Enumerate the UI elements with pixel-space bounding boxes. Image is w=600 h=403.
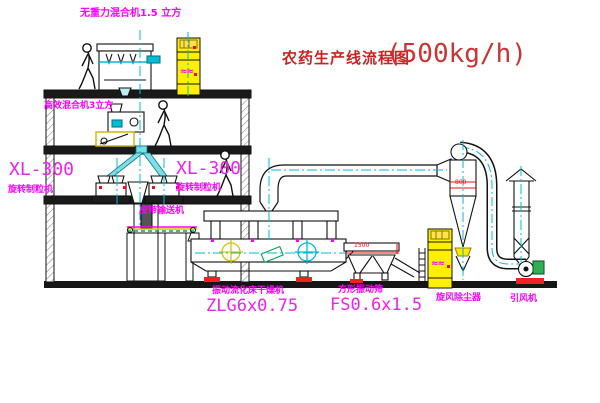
pesticide-line-flow-diagram: 无重力混合机1.5 立方 高效混合机3立方 XL-300 旋转制粒机 XL-30… xyxy=(0,0,600,403)
capacity-label: (500kg/h) xyxy=(386,41,527,67)
label-granulator-left: 旋转制粒机 xyxy=(8,186,53,195)
label-cyclone: 旋风除尘器 xyxy=(436,294,481,303)
label-dryer-name: 振动流化床干燥机 xyxy=(212,287,284,296)
dimension-cyclone: 800 xyxy=(455,180,466,186)
vibrating-sieve xyxy=(344,243,420,283)
elevator1-flow-mark: ≈≈ xyxy=(180,68,193,77)
label-sieve-model: FS0.6x1.5 xyxy=(330,297,422,314)
label-fan: 引风机 xyxy=(510,295,537,304)
induced-draft-fan xyxy=(516,261,544,284)
label-xl300-right: XL-300 xyxy=(176,160,241,178)
label-sieve-name: 方形振动筛 xyxy=(338,286,383,295)
label-floor2-mixer: 高效混合机3立方 xyxy=(44,102,113,111)
fluid-bed-dryer xyxy=(191,211,357,282)
ground-line xyxy=(44,281,557,288)
elevator2-flow-mark: ≈≈ xyxy=(431,260,444,269)
dimension-sieve: 1500 xyxy=(354,243,369,249)
ladder xyxy=(419,248,425,283)
granulators xyxy=(92,176,183,203)
label-gravity-mixer: 无重力混合机1.5 立方 xyxy=(80,9,181,19)
label-xl300-left: XL-300 xyxy=(9,161,74,179)
label-belt-conveyor: 皮带输送机 xyxy=(139,207,184,216)
person-roof xyxy=(79,44,95,89)
person-floor2 xyxy=(155,101,171,146)
label-dryer-model: ZLG6x0.75 xyxy=(206,298,298,315)
label-granulator-right: 旋转制粒机 xyxy=(176,184,221,193)
exhaust-duct xyxy=(260,159,451,211)
gravity-free-mixer xyxy=(97,44,160,96)
